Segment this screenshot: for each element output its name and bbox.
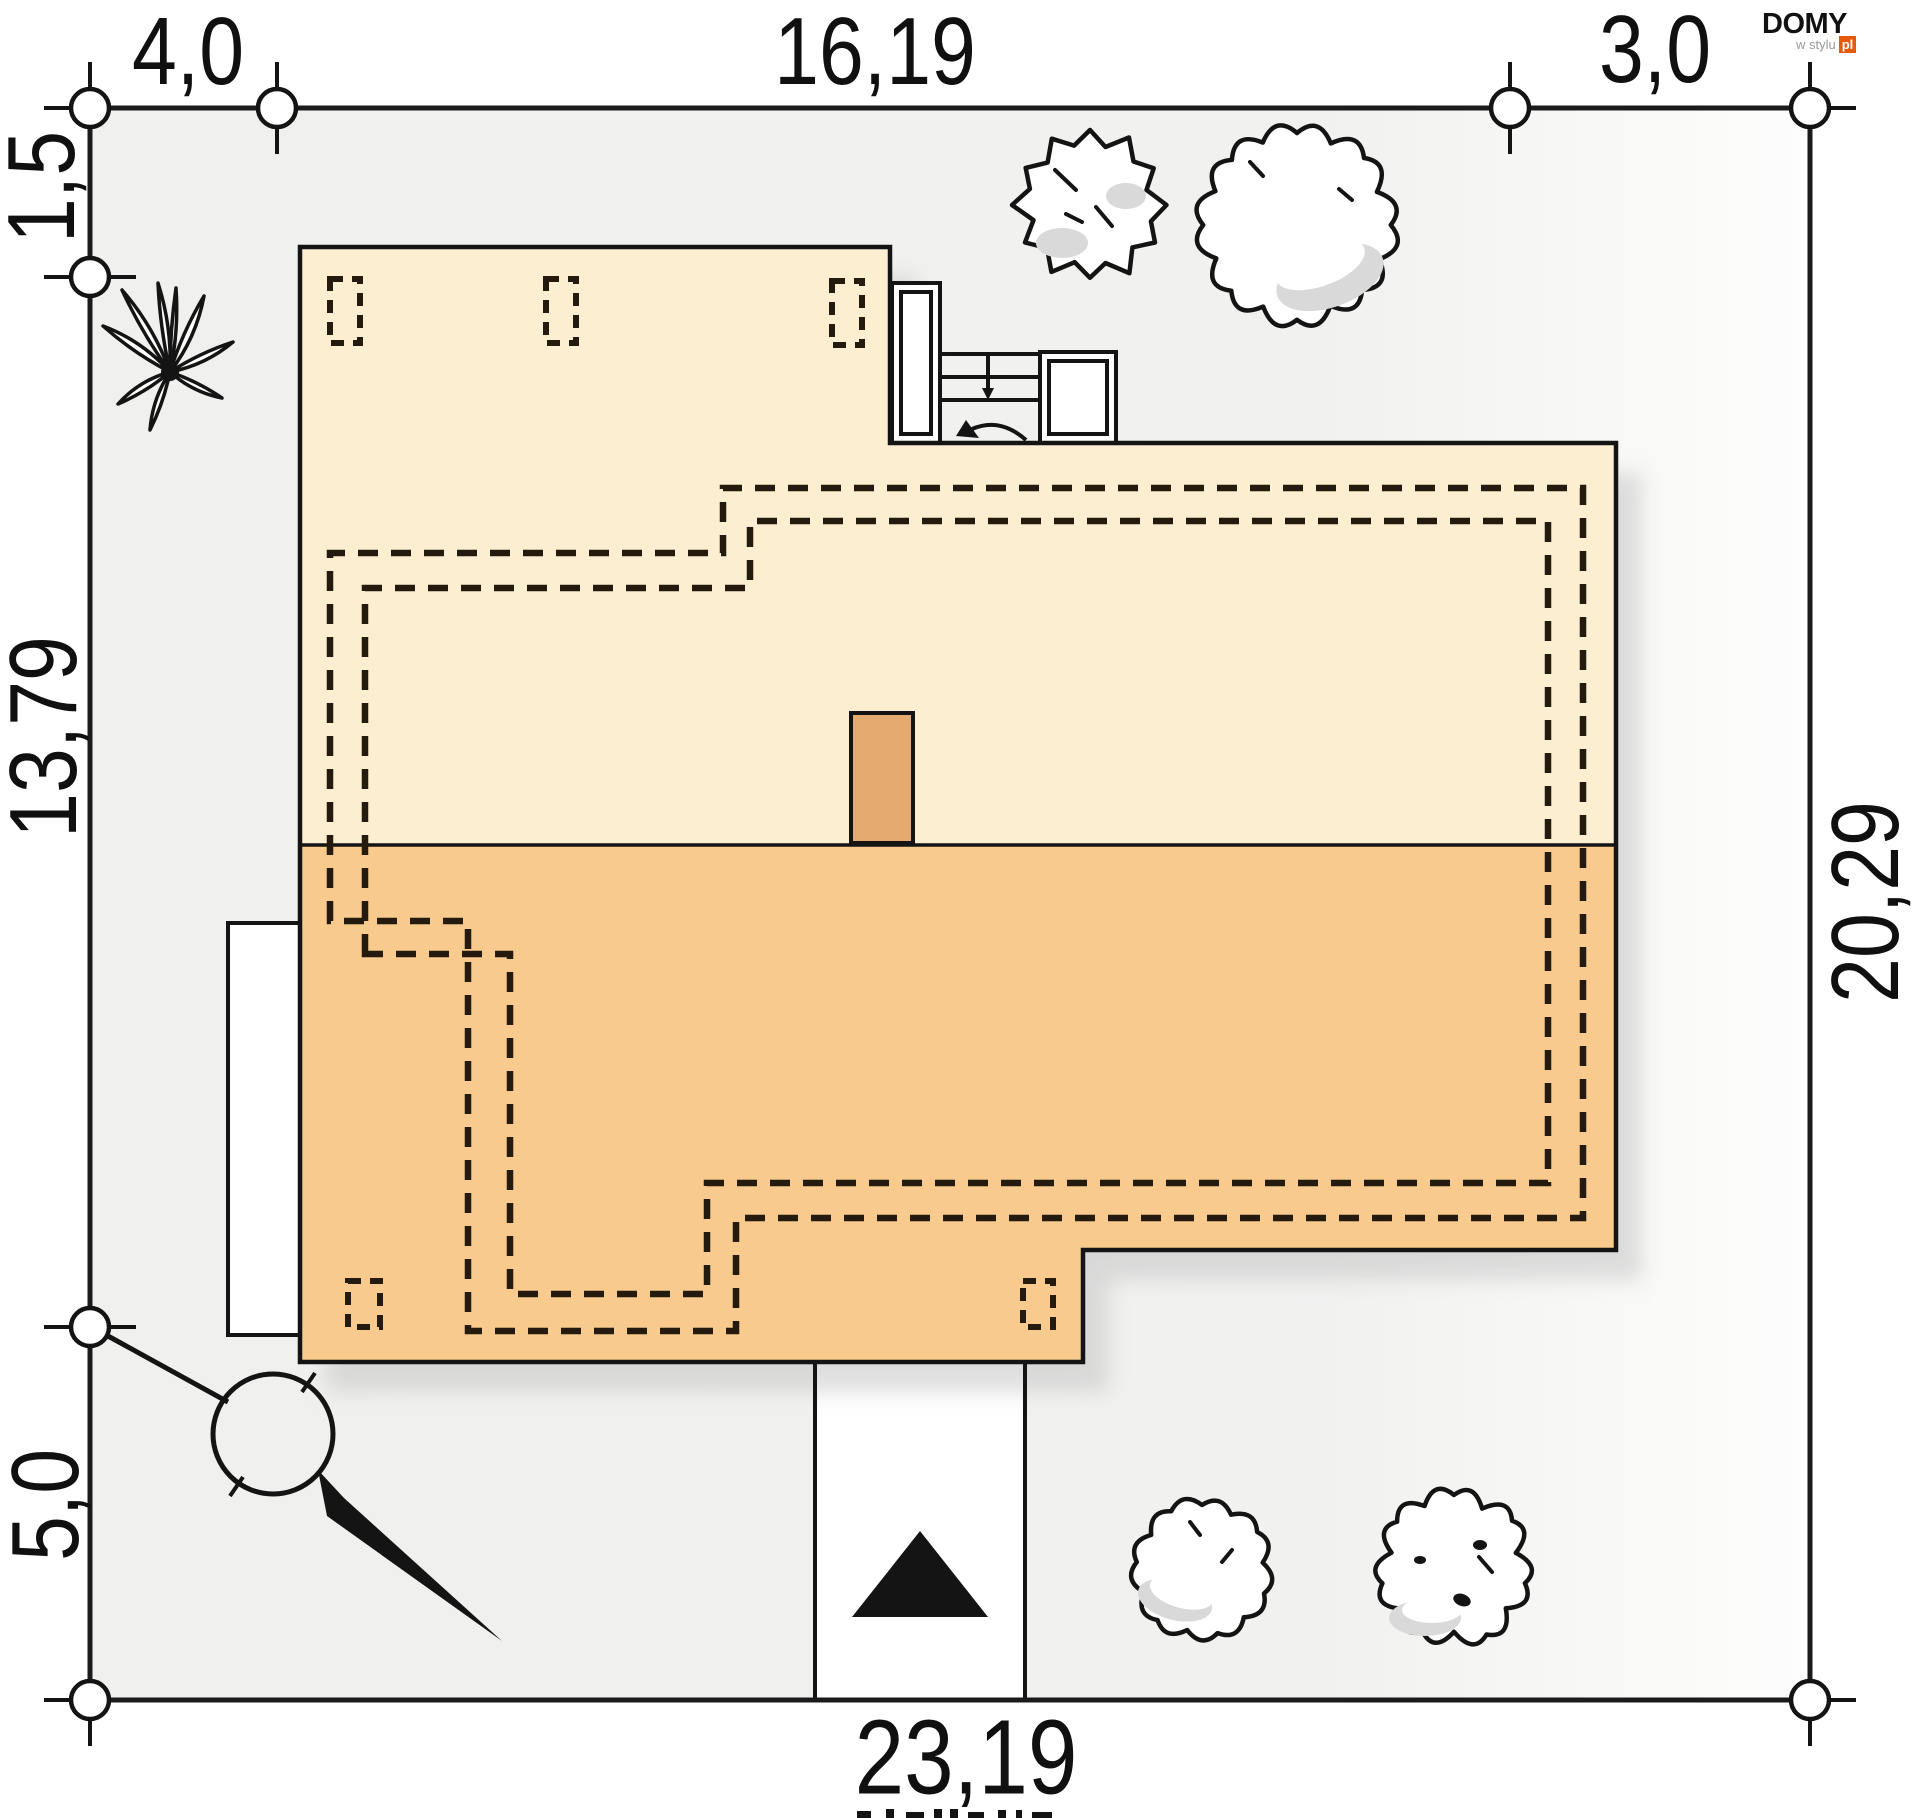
chimney (851, 713, 913, 843)
brand-tagline: w stylu (1796, 37, 1836, 52)
survey-marker (44, 62, 109, 127)
dim-top-right-offset: 3,0 (1599, 0, 1711, 105)
tree-icon (1375, 1489, 1532, 1645)
dim-top-house-width: 16,19 (774, 0, 976, 107)
brand-name: DOMY (1762, 10, 1912, 38)
dim-bottom-plot-width: 23,19 (855, 1698, 1078, 1818)
brand-logo: DOMY w stylu pl (1762, 10, 1912, 53)
survey-marker (1791, 1681, 1856, 1746)
survey-marker (44, 1681, 109, 1746)
site-plan-drawing (0, 0, 1920, 1818)
dim-left-house-depth: 13,79 (0, 636, 99, 838)
dim-left-top-offset: 1,5 (0, 131, 97, 243)
dim-top-left-offset: 4,0 (132, 0, 244, 107)
site-plan: 4,0 16,19 3,0 1,5 13,79 5,0 20,29 23,19 … (0, 0, 1920, 1818)
survey-marker (1791, 62, 1856, 127)
brand-tld-badge: pl (1839, 36, 1857, 53)
terrace (228, 923, 300, 1335)
dim-right-plot-depth: 20,29 (1811, 801, 1920, 1003)
dim-left-bottom-offset: 5,0 (0, 1449, 101, 1561)
